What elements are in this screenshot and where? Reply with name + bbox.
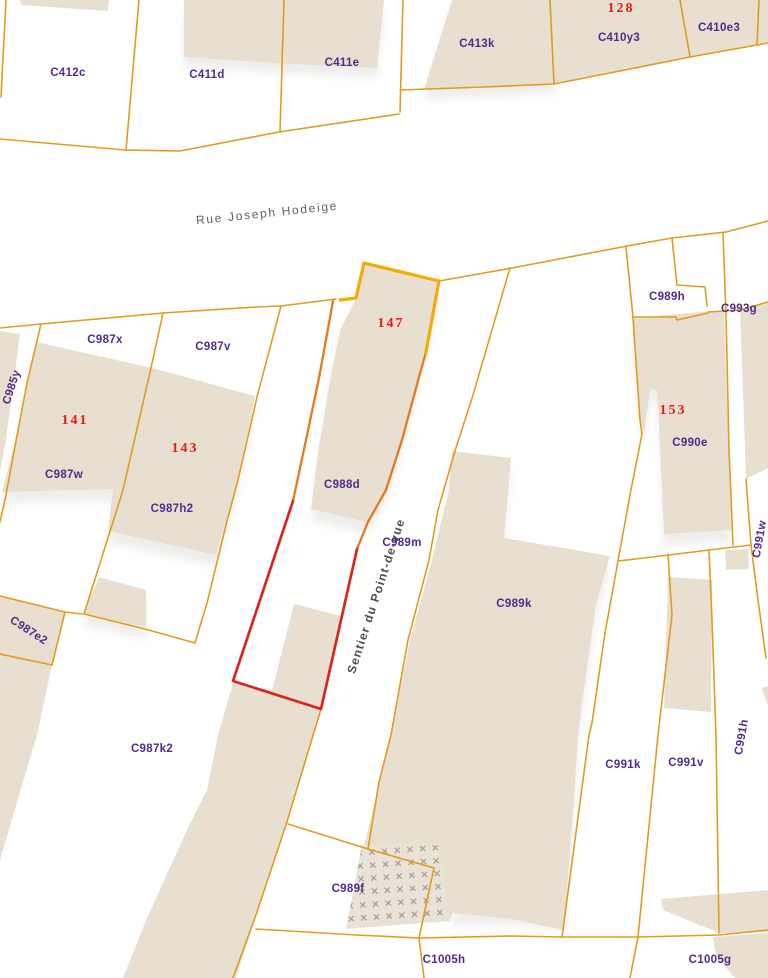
svg-text:C991v: C991v <box>668 757 704 769</box>
svg-text:C989m: C989m <box>382 537 421 549</box>
svg-text:C989f: C989f <box>332 883 365 895</box>
svg-text:C987k2: C987k2 <box>131 743 173 755</box>
svg-text:C1005g: C1005g <box>689 954 732 966</box>
svg-text:C410y3: C410y3 <box>598 32 640 44</box>
svg-text:C410e3: C410e3 <box>698 22 740 34</box>
svg-text:143: 143 <box>172 441 199 456</box>
svg-text:C993g: C993g <box>721 303 757 315</box>
svg-text:C991k: C991k <box>605 759 641 771</box>
svg-text:C987x: C987x <box>87 334 123 346</box>
svg-text:153: 153 <box>660 403 687 418</box>
svg-text:C411d: C411d <box>189 69 224 81</box>
svg-text:128: 128 <box>608 1 635 16</box>
svg-text:C989h: C989h <box>649 291 685 303</box>
svg-text:C987v: C987v <box>195 341 231 353</box>
svg-text:C989k: C989k <box>496 598 532 610</box>
svg-text:C412c: C412c <box>50 67 86 79</box>
svg-text:C990e: C990e <box>672 437 707 449</box>
svg-text:C987w: C987w <box>45 469 83 481</box>
svg-text:C1005h: C1005h <box>423 954 466 966</box>
svg-text:C413k: C413k <box>459 38 495 50</box>
svg-text:C987h2: C987h2 <box>151 503 194 515</box>
svg-text:C411e: C411e <box>325 57 360 69</box>
svg-text:C988d: C988d <box>324 479 360 491</box>
svg-text:147: 147 <box>378 316 405 331</box>
svg-text:141: 141 <box>62 413 89 428</box>
